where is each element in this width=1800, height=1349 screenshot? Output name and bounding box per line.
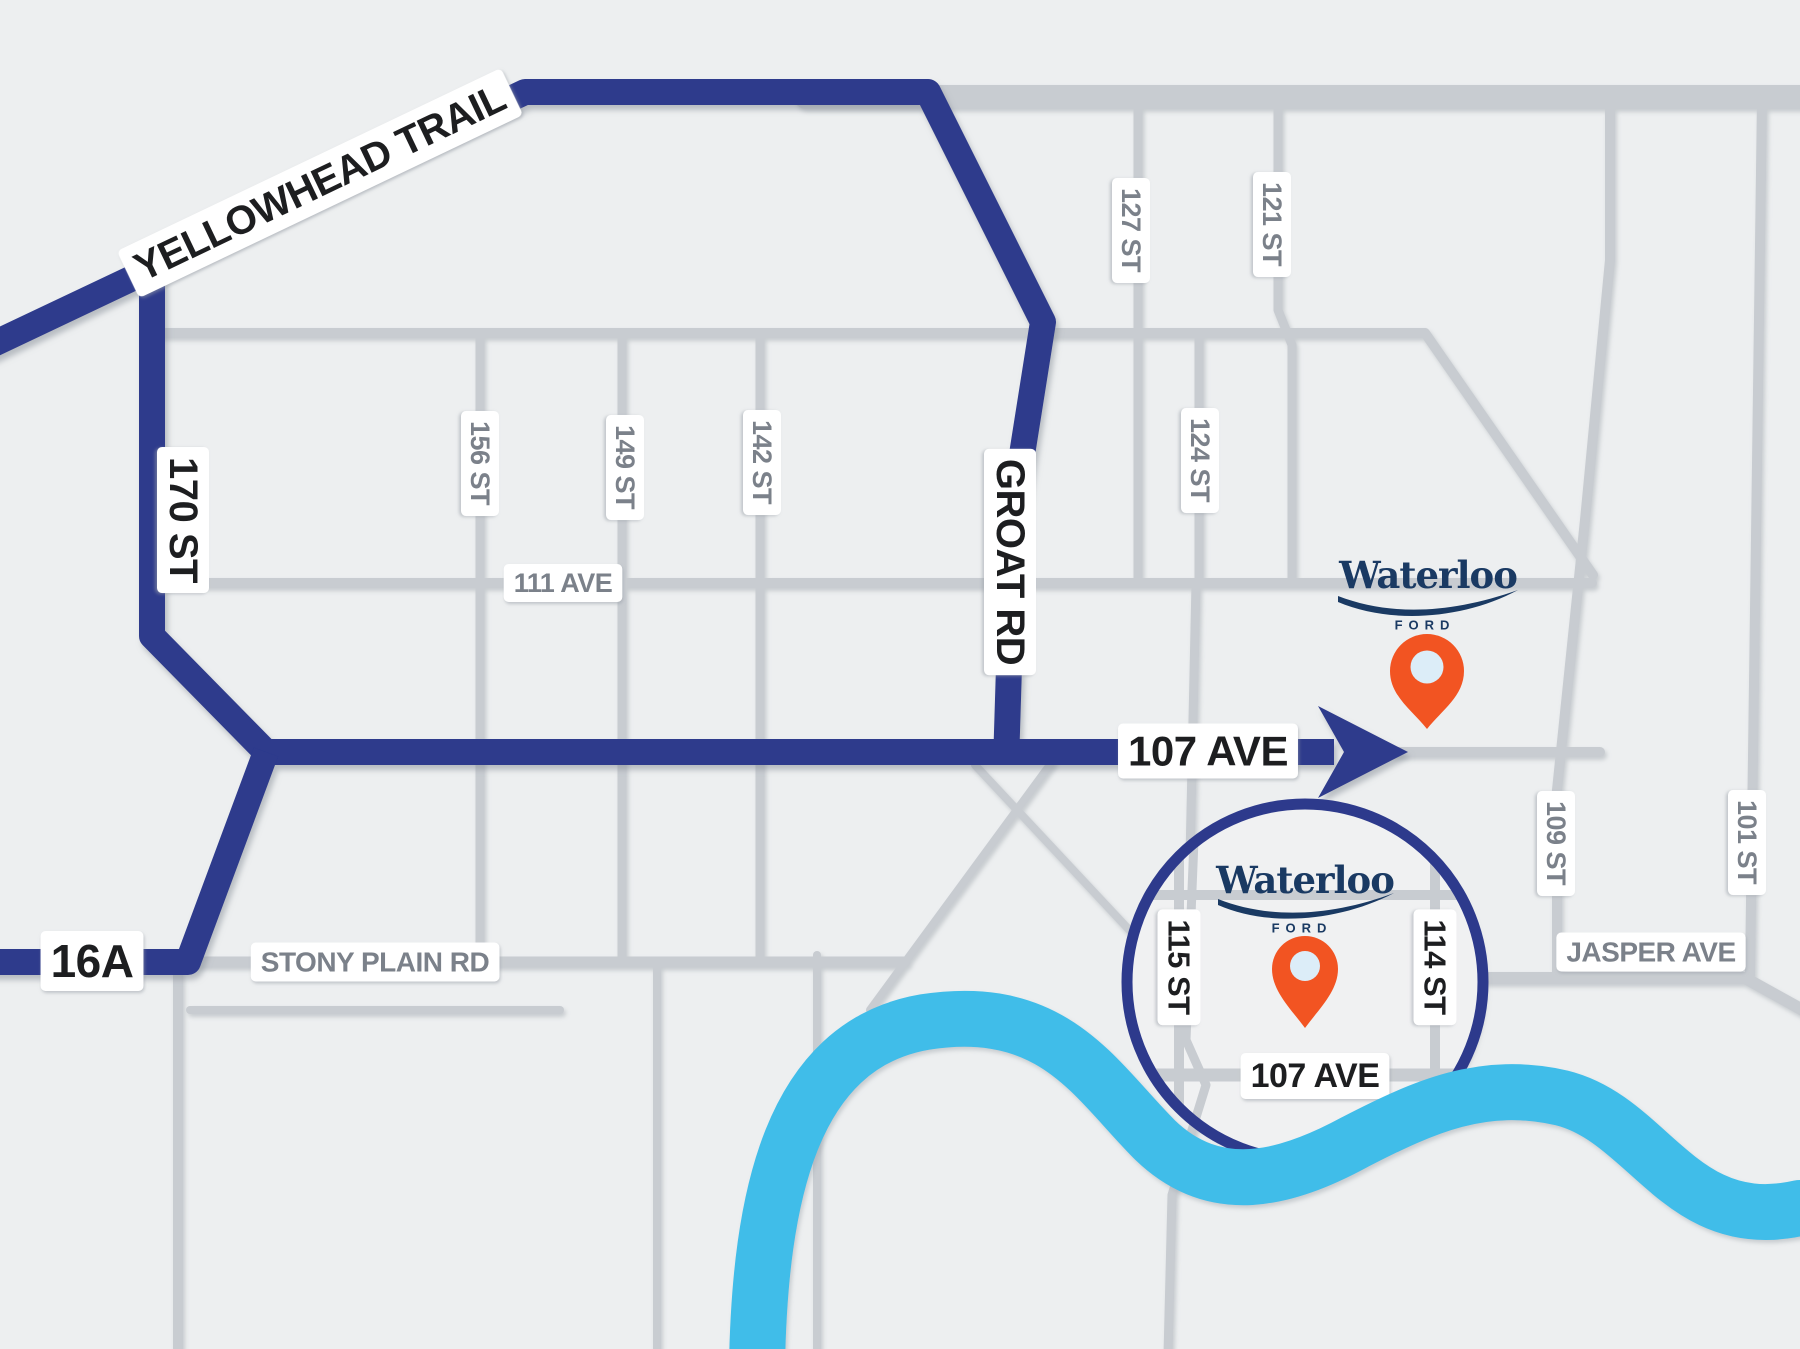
street-label: 101 ST [1728, 790, 1766, 895]
svg-text:107 AVE: 107 AVE [1128, 728, 1288, 775]
dealer-logo-name: Waterloo [1215, 858, 1394, 902]
route-label: YELLOWHEAD TRAIL [117, 68, 523, 298]
street-label: JASPER AVE [1556, 933, 1745, 972]
svg-text:GROAT RD: GROAT RD [988, 459, 1032, 665]
street-label: 149 ST [606, 415, 644, 520]
svg-text:127 ST: 127 ST [1116, 188, 1146, 273]
street-road [975, 765, 1148, 950]
map-canvas: 156 ST149 ST142 ST111 AVE127 ST121 ST124… [0, 0, 1800, 1349]
street-label: 156 ST [461, 411, 499, 516]
svg-text:111 AVE: 111 AVE [514, 568, 613, 598]
svg-text:101 ST: 101 ST [1732, 800, 1762, 885]
svg-text:109 ST: 109 ST [1541, 801, 1571, 886]
dealer-logo-name: Waterloo [1338, 553, 1517, 597]
svg-text:156 ST: 156 ST [465, 421, 495, 506]
svg-text:107 AVE: 107 AVE [1251, 1057, 1380, 1095]
street-label: 111 AVE [504, 564, 623, 602]
inset-label: 114 ST [1414, 909, 1457, 1025]
svg-text:115 ST: 115 ST [1162, 919, 1197, 1015]
svg-text:142 ST: 142 ST [747, 420, 777, 505]
svg-text:124 ST: 124 ST [1185, 418, 1215, 503]
route-label: 107 AVE [1118, 724, 1298, 779]
svg-text:170 ST: 170 ST [161, 457, 205, 583]
svg-text:STONY PLAIN RD: STONY PLAIN RD [261, 947, 490, 978]
location-pin-center [1290, 951, 1320, 981]
street-label: 121 ST [1253, 172, 1291, 277]
dealer-marker-main: Waterloo FORD [1338, 553, 1518, 729]
road-labels: 156 ST149 ST142 ST111 AVE127 ST121 ST124… [41, 68, 1766, 991]
street-label: 124 ST [1181, 408, 1219, 513]
route-label: 170 ST [157, 447, 209, 593]
street-road [1450, 978, 1800, 1014]
location-pin-center [1411, 651, 1444, 684]
svg-text:16A: 16A [51, 935, 134, 987]
street-label: 127 ST [1112, 178, 1150, 283]
inset-label: 107 AVE [1241, 1053, 1390, 1099]
route-16a [0, 752, 266, 962]
route-label: 16A [41, 931, 144, 991]
dealer-logo-sub: FORD [1272, 921, 1333, 936]
inset-label: 115 ST [1158, 909, 1201, 1025]
svg-text:121 ST: 121 ST [1257, 182, 1287, 267]
svg-text:JASPER AVE: JASPER AVE [1566, 937, 1735, 968]
street-road [160, 333, 1593, 575]
street-label: 109 ST [1537, 791, 1575, 896]
svg-text:149 ST: 149 ST [610, 425, 640, 510]
svg-text:114 ST: 114 ST [1418, 919, 1453, 1015]
street-grid [160, 97, 1800, 1349]
route-label: GROAT RD [984, 449, 1036, 675]
svg-text:YELLOWHEAD TRAIL: YELLOWHEAD TRAIL [128, 76, 513, 290]
street-label: STONY PLAIN RD [251, 943, 500, 982]
street-road [870, 762, 1052, 1010]
dealer-logo-sub: FORD [1395, 618, 1456, 633]
street-label: 142 ST [743, 410, 781, 515]
